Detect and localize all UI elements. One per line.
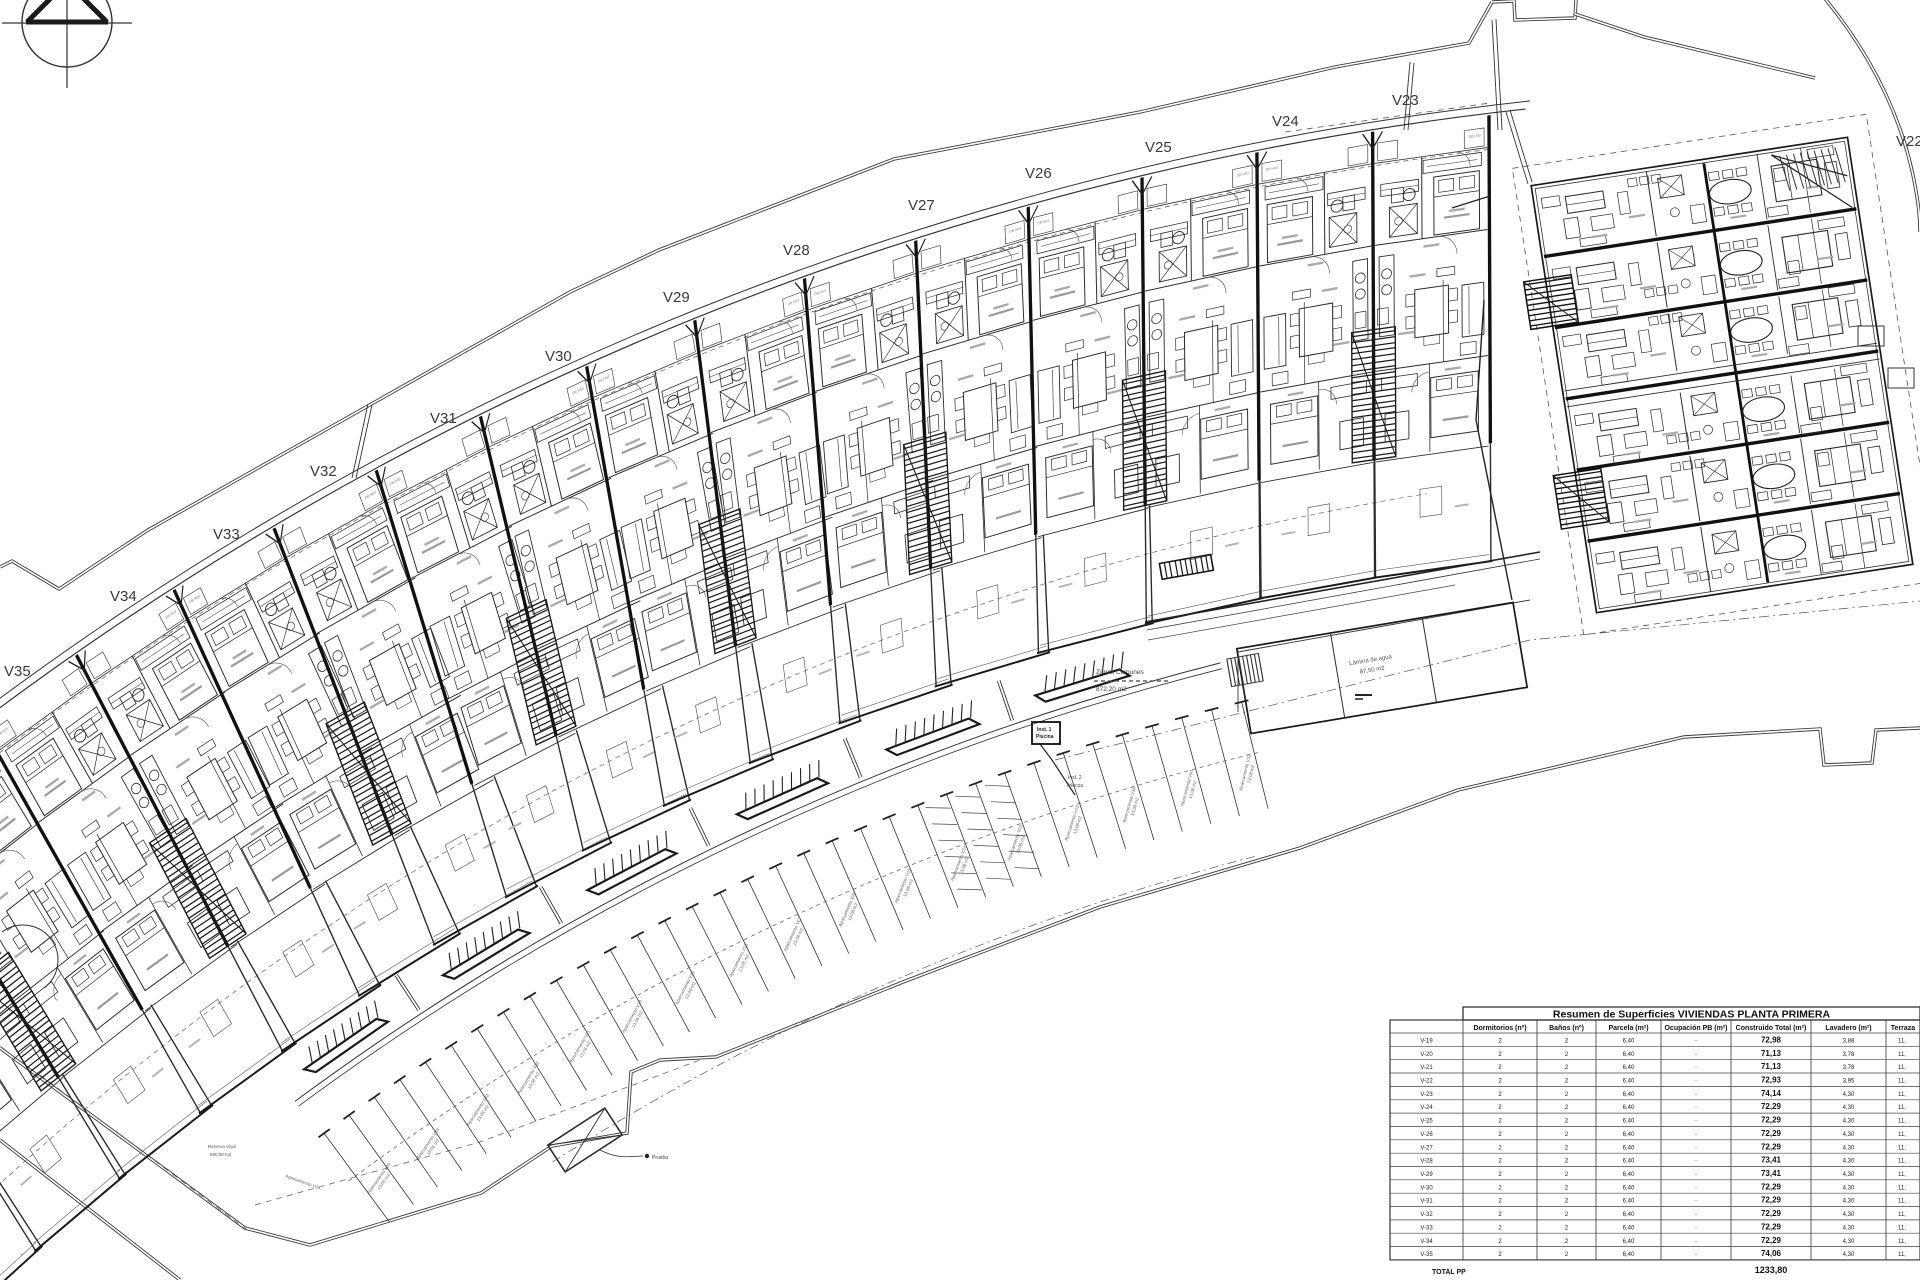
svg-text:Resumen de Superficies VIVIEND: Resumen de Superficies VIVIENDAS PLANTA …: [1553, 1009, 1831, 1021]
svg-text:1233,80: 1233,80: [1755, 1265, 1788, 1275]
svg-text:72,29: 72,29: [1761, 1182, 1782, 1191]
svg-text:-: -: [1695, 1145, 1697, 1151]
svg-text:72,29: 72,29: [1761, 1236, 1782, 1245]
svg-text:V-26: V-26: [1420, 1132, 1433, 1138]
svg-text:-: -: [1695, 1092, 1697, 1098]
svg-text:4,30: 4,30: [1843, 1145, 1855, 1151]
svg-text:V-27: V-27: [1420, 1145, 1433, 1151]
svg-text:11,: 11,: [1898, 1225, 1906, 1231]
svg-text:-: -: [1695, 1185, 1697, 1191]
svg-text:V22: V22: [1896, 133, 1920, 150]
svg-text:71,13: 71,13: [1761, 1049, 1782, 1058]
svg-text:Dormitorios (nº): Dormitorios (nº): [1473, 1025, 1526, 1032]
svg-text:V29: V29: [663, 289, 690, 306]
svg-text:-: -: [1695, 1252, 1697, 1258]
svg-text:6,40: 6,40: [1623, 1159, 1635, 1165]
svg-text:V32: V32: [310, 463, 337, 480]
svg-text:Baños (nº): Baños (nº): [1549, 1025, 1584, 1032]
svg-text:6,40: 6,40: [1623, 1132, 1635, 1138]
svg-text:74,06: 74,06: [1761, 1249, 1782, 1258]
svg-text:11,: 11,: [1898, 1145, 1906, 1151]
svg-text:11,: 11,: [1898, 1172, 1906, 1178]
svg-text:11,: 11,: [1898, 1199, 1906, 1205]
svg-text:6,40: 6,40: [1623, 1172, 1635, 1178]
svg-text:V-20: V-20: [1420, 1052, 1433, 1058]
svg-text:-: -: [1695, 1212, 1697, 1218]
svg-text:Reserva Viçal: Reserva Viçal: [208, 1144, 236, 1149]
svg-text:-: -: [1695, 1199, 1697, 1205]
svg-text:4,30: 4,30: [1843, 1172, 1855, 1178]
svg-text:4,30: 4,30: [1843, 1132, 1855, 1138]
svg-text:V-33: V-33: [1420, 1225, 1433, 1231]
svg-text:V34: V34: [110, 588, 137, 605]
svg-text:11,: 11,: [1898, 1039, 1906, 1045]
svg-text:72,29: 72,29: [1761, 1116, 1782, 1125]
svg-text:Telecos.: Telecos.: [1066, 783, 1084, 789]
svg-text:V-24: V-24: [1420, 1105, 1433, 1111]
svg-text:-: -: [1695, 1039, 1697, 1045]
svg-text:11,: 11,: [1898, 1065, 1906, 1071]
svg-text:V27: V27: [908, 197, 935, 214]
svg-text:4,30: 4,30: [1843, 1119, 1855, 1125]
svg-text:6,40: 6,40: [1623, 1252, 1635, 1258]
svg-text:V28: V28: [783, 242, 810, 259]
svg-text:-: -: [1695, 1132, 1697, 1138]
svg-text:72,29: 72,29: [1761, 1196, 1782, 1205]
svg-text:872,20 m2: 872,20 m2: [1096, 686, 1127, 693]
svg-text:V-32: V-32: [1420, 1212, 1433, 1218]
svg-text:3,78: 3,78: [1843, 1052, 1855, 1058]
svg-text:6,40: 6,40: [1623, 1039, 1635, 1045]
svg-text:590,68 m2: 590,68 m2: [210, 1152, 232, 1157]
svg-text:-: -: [1695, 1239, 1697, 1245]
svg-text:73,41: 73,41: [1761, 1156, 1782, 1165]
svg-text:Ocupación PB (m²): Ocupación PB (m²): [1664, 1025, 1727, 1032]
svg-text:4,30: 4,30: [1843, 1185, 1855, 1191]
svg-text:V24: V24: [1272, 113, 1299, 130]
svg-text:V35: V35: [4, 663, 31, 680]
svg-text:-: -: [1695, 1079, 1697, 1085]
svg-text:6,40: 6,40: [1623, 1212, 1635, 1218]
svg-text:V-31: V-31: [1420, 1199, 1433, 1205]
svg-text:11,: 11,: [1898, 1185, 1906, 1191]
svg-text:4,30: 4,30: [1843, 1092, 1855, 1098]
svg-text:73,41: 73,41: [1761, 1169, 1782, 1178]
svg-text:V-29: V-29: [1420, 1172, 1433, 1178]
svg-text:Parcela (m²): Parcela (m²): [1608, 1025, 1648, 1032]
svg-text:3,88: 3,88: [1843, 1039, 1855, 1045]
svg-text:-: -: [1695, 1225, 1697, 1231]
svg-text:6,40: 6,40: [1623, 1119, 1635, 1125]
svg-text:4,30: 4,30: [1843, 1239, 1855, 1245]
svg-text:6,40: 6,40: [1623, 1079, 1635, 1085]
svg-text:72,29: 72,29: [1761, 1102, 1782, 1111]
svg-text:V23: V23: [1392, 92, 1419, 109]
svg-text:4,30: 4,30: [1843, 1212, 1855, 1218]
svg-text:71,13: 71,13: [1761, 1062, 1782, 1071]
svg-text:6,40: 6,40: [1623, 1199, 1635, 1205]
svg-text:6,40: 6,40: [1623, 1185, 1635, 1191]
svg-text:V-19: V-19: [1420, 1039, 1433, 1045]
svg-text:72,29: 72,29: [1761, 1209, 1782, 1218]
svg-text:V30: V30: [545, 348, 572, 365]
svg-text:4,30: 4,30: [1843, 1159, 1855, 1165]
svg-text:3,95: 3,95: [1843, 1079, 1855, 1085]
svg-text:3,78: 3,78: [1843, 1065, 1855, 1071]
svg-text:-: -: [1695, 1119, 1697, 1125]
svg-text:11,: 11,: [1898, 1212, 1906, 1218]
svg-text:V-35: V-35: [1420, 1252, 1433, 1258]
svg-text:-: -: [1695, 1159, 1697, 1165]
svg-text:11,: 11,: [1898, 1132, 1906, 1138]
svg-text:Inst. 1: Inst. 1: [1037, 727, 1052, 733]
svg-text:Piscina: Piscina: [1036, 734, 1054, 740]
svg-text:TOTAL PP: TOTAL PP: [1432, 1269, 1466, 1276]
svg-text:V-34: V-34: [1420, 1239, 1433, 1245]
svg-text:6,40: 6,40: [1623, 1052, 1635, 1058]
svg-text:4,30: 4,30: [1843, 1105, 1855, 1111]
svg-text:V25: V25: [1145, 139, 1172, 156]
svg-text:V-21: V-21: [1420, 1065, 1433, 1071]
svg-text:11,: 11,: [1898, 1119, 1906, 1125]
svg-text:11,: 11,: [1898, 1092, 1906, 1098]
svg-text:V-30: V-30: [1420, 1185, 1433, 1191]
svg-text:V-25: V-25: [1420, 1119, 1433, 1125]
svg-text:11,: 11,: [1898, 1159, 1906, 1165]
svg-text:6,40: 6,40: [1623, 1239, 1635, 1245]
svg-text:V26: V26: [1025, 165, 1052, 182]
svg-text:V-23: V-23: [1420, 1092, 1433, 1098]
svg-text:72,29: 72,29: [1761, 1129, 1782, 1138]
svg-text:4,30: 4,30: [1843, 1199, 1855, 1205]
svg-text:11,: 11,: [1898, 1252, 1906, 1258]
svg-text:V31: V31: [430, 410, 457, 427]
svg-text:Inst. 2: Inst. 2: [1068, 775, 1082, 781]
svg-text:11,: 11,: [1898, 1052, 1906, 1058]
svg-text:-: -: [1695, 1065, 1697, 1071]
svg-text:72,93: 72,93: [1761, 1076, 1782, 1085]
svg-text:6,40: 6,40: [1623, 1225, 1635, 1231]
svg-text:6,40: 6,40: [1623, 1092, 1635, 1098]
svg-text:4,30: 4,30: [1843, 1225, 1855, 1231]
svg-text:72,98: 72,98: [1761, 1036, 1782, 1045]
svg-text:-: -: [1695, 1052, 1697, 1058]
svg-text:6,40: 6,40: [1623, 1065, 1635, 1071]
svg-text:Zonas Comunes: Zonas Comunes: [1096, 669, 1144, 676]
svg-text:6,40: 6,40: [1623, 1145, 1635, 1151]
svg-text:Lavadero (m²): Lavadero (m²): [1825, 1025, 1871, 1032]
svg-text:11,: 11,: [1898, 1079, 1906, 1085]
svg-text:-: -: [1695, 1172, 1697, 1178]
svg-text:11,: 11,: [1898, 1105, 1906, 1111]
svg-text:6,40: 6,40: [1623, 1105, 1635, 1111]
svg-text:V-22: V-22: [1420, 1079, 1433, 1085]
svg-text:Terraza: Terraza: [1891, 1025, 1915, 1032]
svg-text:Construido Total (m²): Construido Total (m²): [1736, 1025, 1807, 1032]
svg-text:4,30: 4,30: [1843, 1252, 1855, 1258]
svg-text:11,: 11,: [1898, 1239, 1906, 1245]
svg-text:72,29: 72,29: [1761, 1142, 1782, 1151]
svg-text:74,14: 74,14: [1761, 1089, 1782, 1098]
svg-text:72,29: 72,29: [1761, 1222, 1782, 1231]
svg-text:V33: V33: [213, 526, 240, 543]
svg-text:-: -: [1695, 1105, 1697, 1111]
svg-text:V-28: V-28: [1420, 1159, 1433, 1165]
svg-text:Prueba: Prueba: [652, 1155, 668, 1161]
